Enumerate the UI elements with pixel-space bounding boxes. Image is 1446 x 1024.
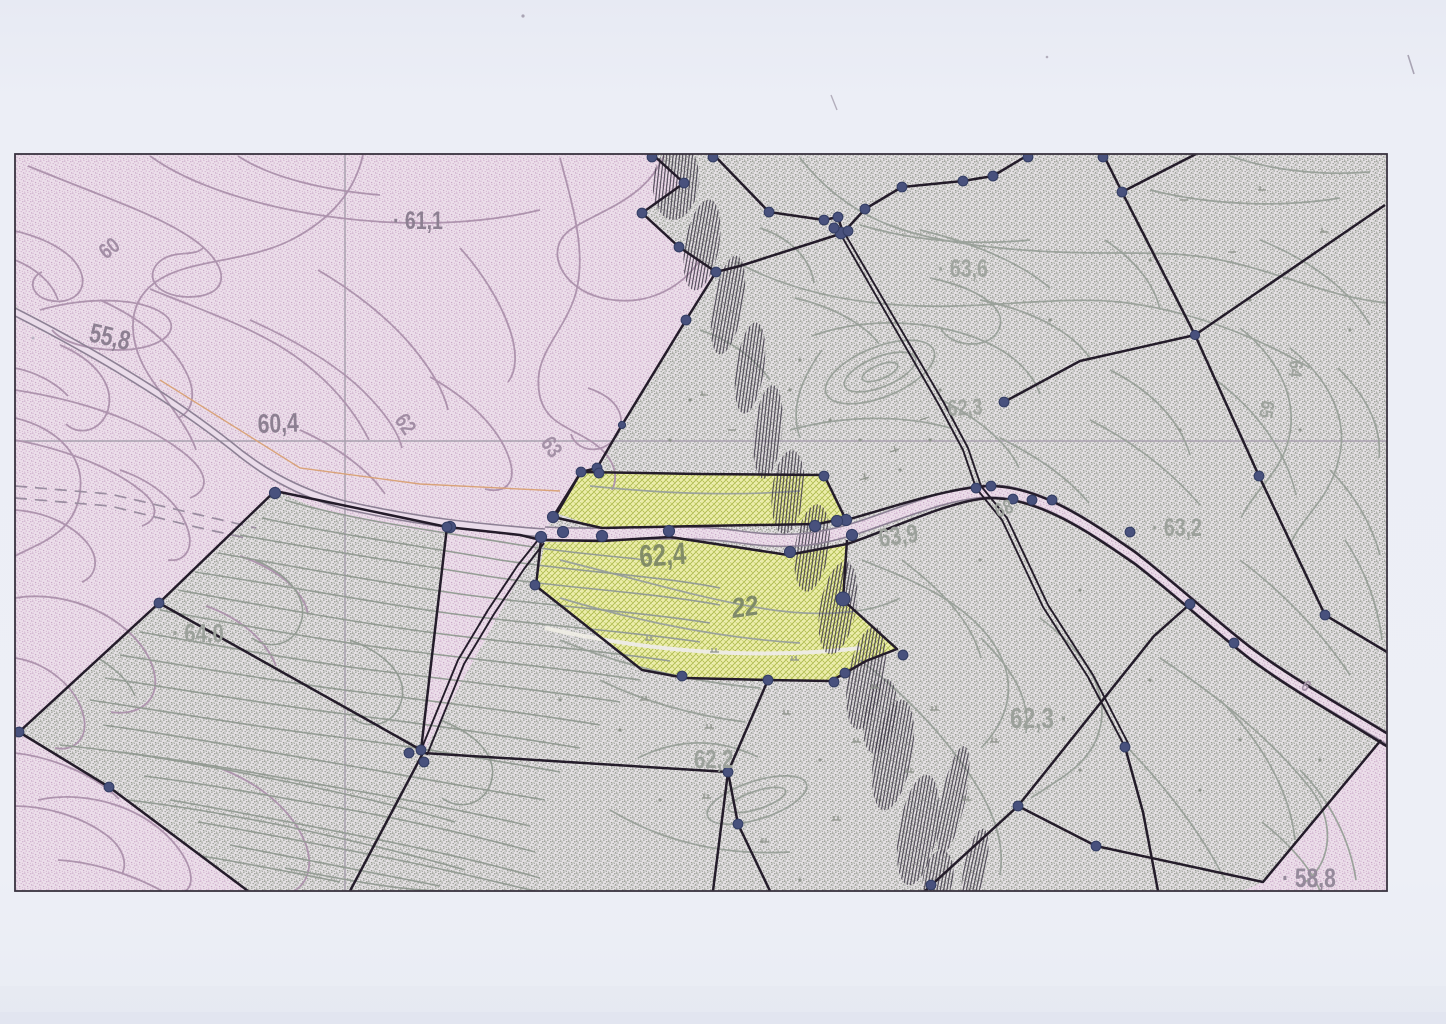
svg-text:22: 22: [728, 589, 760, 625]
svg-text:62,3: 62,3: [947, 394, 983, 421]
svg-text:· 58,8: · 58,8: [1282, 864, 1336, 894]
svg-text:· 64,0: · 64,0: [172, 619, 224, 648]
svg-text:60,4: 60,4: [257, 408, 299, 440]
svg-text:· 63,2: · 63,2: [1152, 514, 1202, 542]
svg-text:· 61,1: · 61,1: [393, 207, 443, 235]
svg-text:· 63,6: · 63,6: [938, 255, 988, 283]
svg-text:64: 64: [1284, 360, 1308, 379]
svg-text:63,9: 63,9: [877, 518, 920, 552]
svg-text:62,4: 62,4: [638, 536, 688, 574]
svg-text:62,2: 62,2: [694, 745, 733, 774]
svg-text:62,3 ·: 62,3 ·: [1010, 701, 1068, 734]
